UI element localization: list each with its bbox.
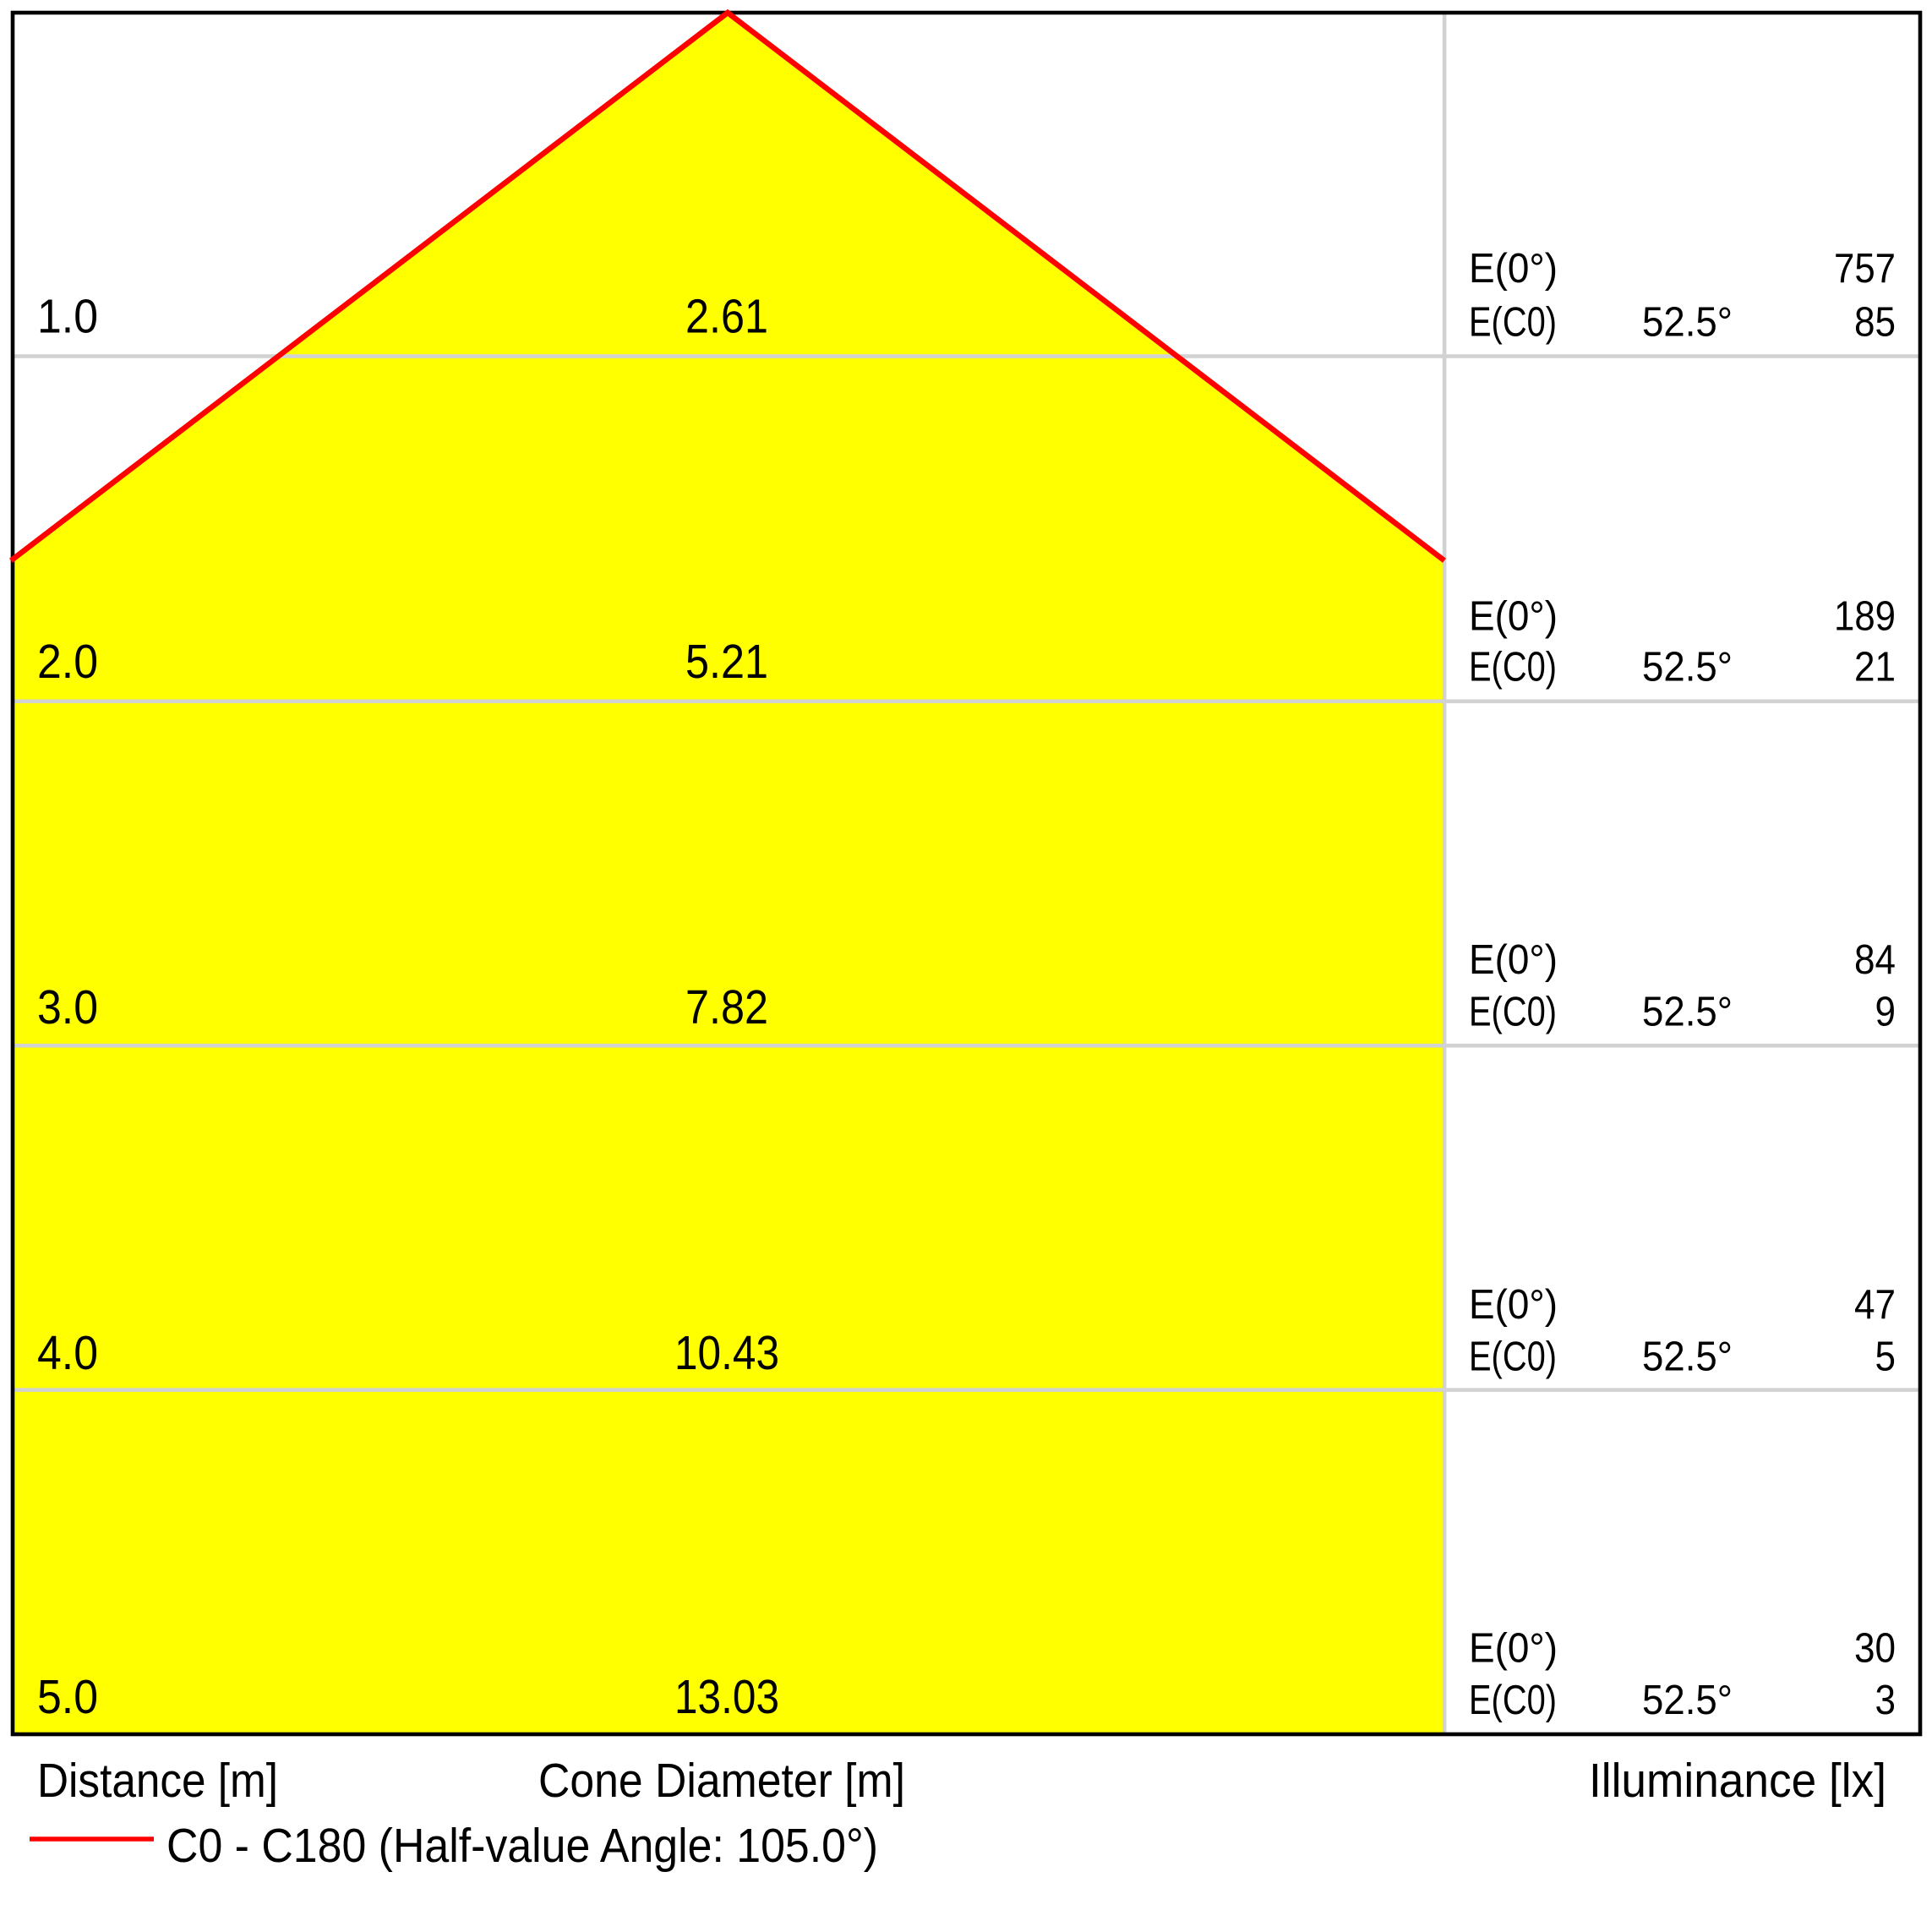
svg-text:10.43: 10.43 xyxy=(674,1326,779,1380)
svg-text:47: 47 xyxy=(1854,1282,1896,1328)
svg-text:E(0°): E(0°) xyxy=(1469,1282,1558,1328)
svg-text:52.5°: 52.5° xyxy=(1642,300,1733,346)
svg-text:Distance [m]: Distance [m] xyxy=(37,1754,278,1808)
svg-text:9: 9 xyxy=(1875,990,1897,1035)
svg-text:E(C0): E(C0) xyxy=(1469,990,1557,1035)
svg-text:757: 757 xyxy=(1834,246,1896,292)
svg-text:4.0: 4.0 xyxy=(37,1326,98,1380)
svg-text:2.61: 2.61 xyxy=(685,290,768,344)
svg-text:52.5°: 52.5° xyxy=(1642,990,1733,1035)
svg-text:85: 85 xyxy=(1854,300,1896,346)
svg-text:E(C0): E(C0) xyxy=(1469,645,1557,690)
svg-text:E(0°): E(0°) xyxy=(1469,937,1558,983)
svg-text:C0 - C180 (Half-value Angle: 1: C0 - C180 (Half-value Angle: 105.0°) xyxy=(166,1819,878,1873)
svg-text:189: 189 xyxy=(1834,594,1896,640)
svg-text:2.0: 2.0 xyxy=(37,635,98,689)
svg-text:3.0: 3.0 xyxy=(37,980,98,1034)
svg-text:5.21: 5.21 xyxy=(685,635,768,689)
svg-text:7.82: 7.82 xyxy=(685,980,768,1034)
svg-text:84: 84 xyxy=(1854,937,1896,983)
svg-text:Cone Diameter [m]: Cone Diameter [m] xyxy=(538,1754,905,1808)
svg-text:5.0: 5.0 xyxy=(37,1670,98,1724)
svg-text:E(0°): E(0°) xyxy=(1469,1626,1558,1672)
svg-text:30: 30 xyxy=(1854,1626,1896,1672)
svg-text:21: 21 xyxy=(1854,645,1896,690)
svg-text:Illuminance [lx]: Illuminance [lx] xyxy=(1589,1754,1886,1808)
svg-text:52.5°: 52.5° xyxy=(1642,1678,1733,1723)
svg-text:1.0: 1.0 xyxy=(37,290,98,344)
svg-text:52.5°: 52.5° xyxy=(1642,1334,1733,1380)
svg-text:3: 3 xyxy=(1875,1678,1897,1723)
svg-text:52.5°: 52.5° xyxy=(1642,645,1733,690)
svg-text:E(C0): E(C0) xyxy=(1469,300,1557,346)
svg-text:E(0°): E(0°) xyxy=(1469,594,1558,640)
svg-text:5: 5 xyxy=(1875,1334,1897,1380)
svg-text:E(C0): E(C0) xyxy=(1469,1678,1557,1723)
svg-text:13.03: 13.03 xyxy=(674,1670,779,1724)
svg-text:E(C0): E(C0) xyxy=(1469,1334,1557,1380)
svg-text:E(0°): E(0°) xyxy=(1469,246,1558,292)
